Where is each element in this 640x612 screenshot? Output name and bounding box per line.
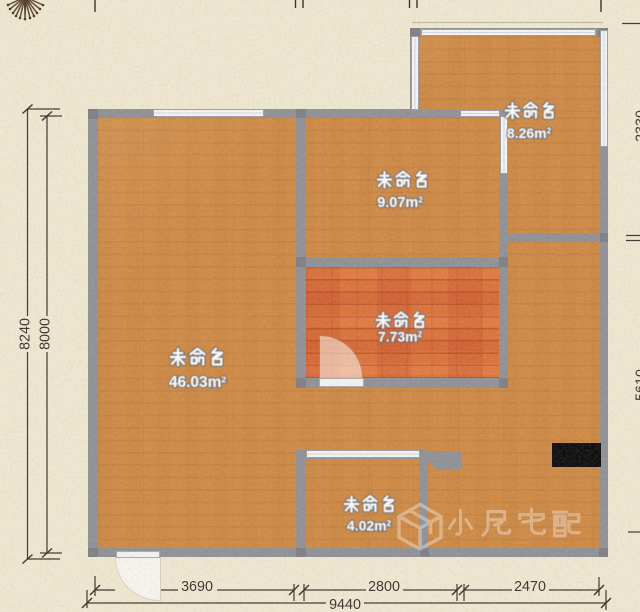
svg-text:2470: 2470 [514,579,546,595]
svg-text:5610: 5610 [634,369,640,401]
svg-text:7.73m2: 7.73m2 [378,329,423,345]
svg-text:4.02m2: 4.02m2 [347,518,392,534]
svg-text:9440: 9440 [329,597,361,612]
svg-text:3690: 3690 [181,579,213,595]
svg-text:2330: 2330 [634,110,640,142]
svg-text:46.03m2: 46.03m2 [169,374,227,391]
svg-text:2800: 2800 [368,579,400,595]
svg-text:8.26m2: 8.26m2 [507,125,552,141]
svg-text:9.07m2: 9.07m2 [377,195,423,211]
svg-text:8240: 8240 [18,318,34,350]
svg-text:8000: 8000 [38,318,54,350]
